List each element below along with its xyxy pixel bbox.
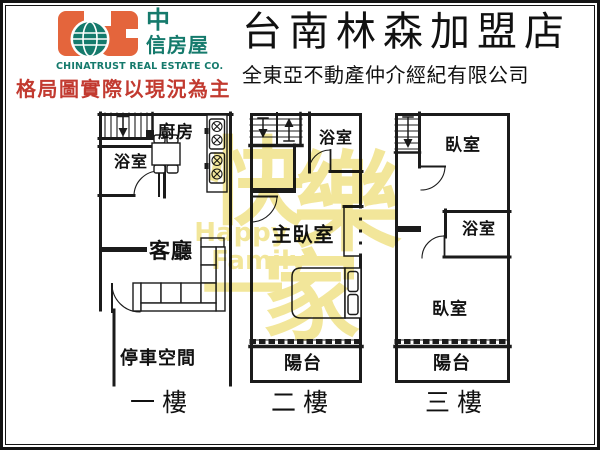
floor-name-3f: 三樓 [425,383,489,419]
room-label-living-f1: 客廳 [149,235,193,265]
room-label-bath-f3: 浴室 [462,215,496,239]
room-labels: 廚房 浴室 客廳 停車空間 浴室 主臥室 陽台 臥室 浴室 臥室 陽台 一樓 二… [0,0,600,450]
room-label-bed1-f3: 臥室 [445,131,481,156]
floor-name-1f: 一樓 [130,383,194,419]
room-label-parking-f1: 停車空間 [120,344,196,370]
room-label-kitchen-f1: 廚房 [158,118,194,143]
room-label-master-f2: 主臥室 [272,219,335,248]
floor-name-2f: 二樓 [271,383,335,419]
floorplan-flyer: 中 信房屋 CHINATRUST REAL ESTATE CO. 格局圖實際以現… [0,0,600,450]
room-label-bath-f2: 浴室 [319,124,353,148]
room-label-balcony-f3: 陽台 [433,349,471,375]
room-label-bed2-f3: 臥室 [432,295,468,320]
room-label-bath-f1: 浴室 [114,148,148,172]
room-label-balcony-f2: 陽台 [284,349,322,375]
